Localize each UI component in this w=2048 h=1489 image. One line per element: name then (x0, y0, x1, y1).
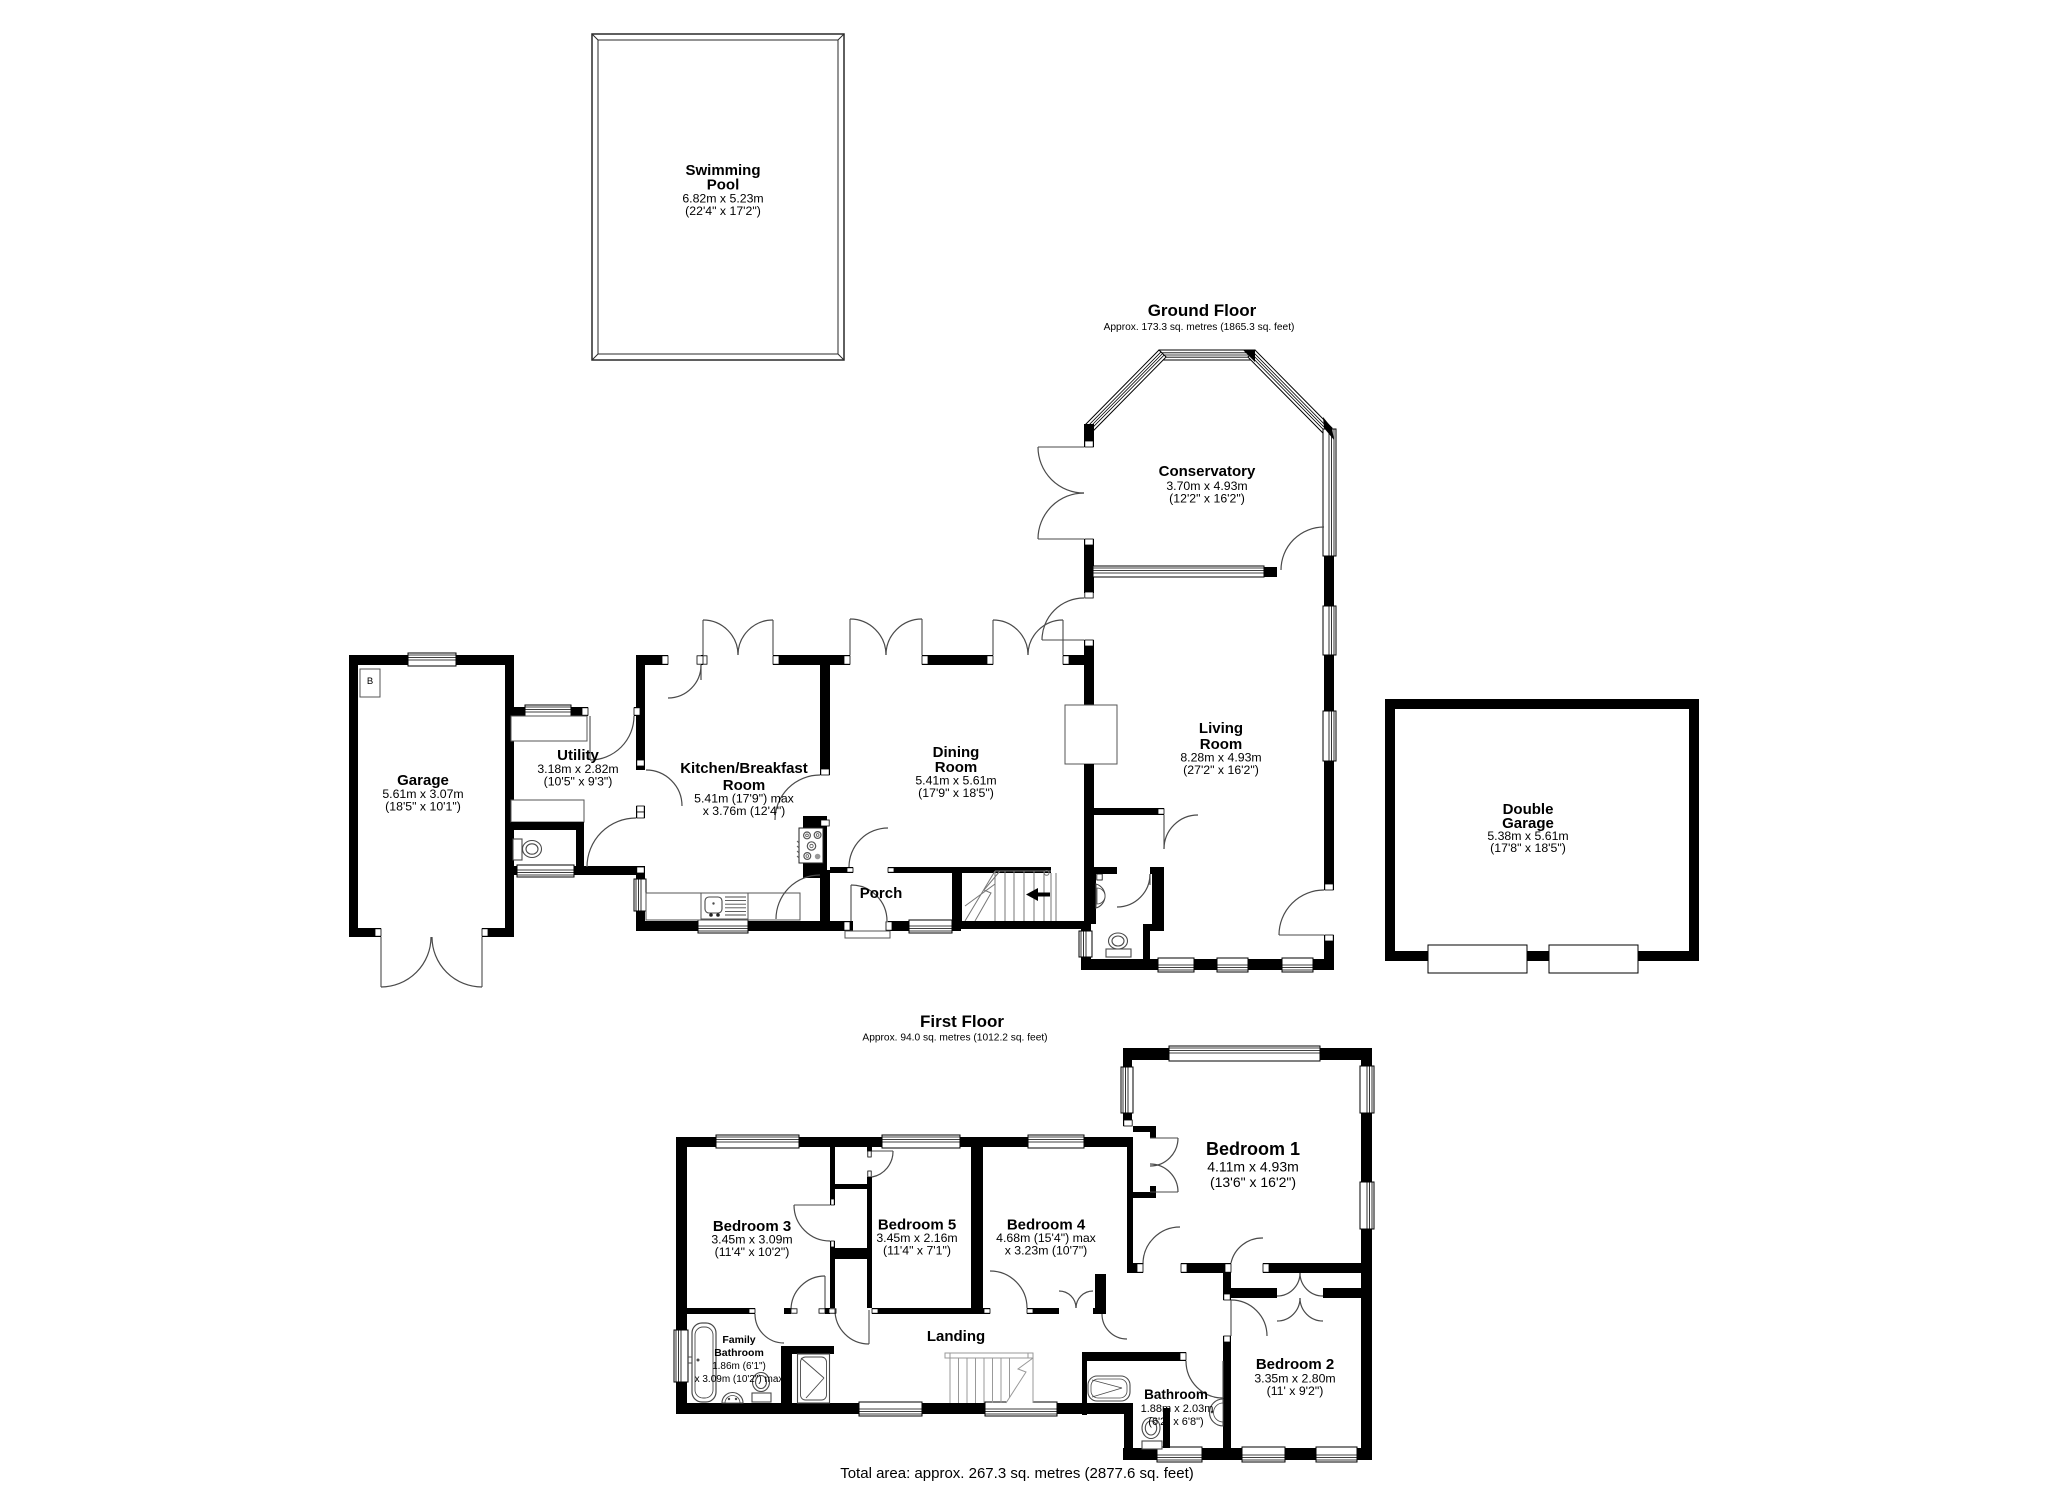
svg-text:(12'2" x 16'2"): (12'2" x 16'2") (1169, 492, 1245, 506)
svg-text:(27'2" x 16'2"): (27'2" x 16'2") (1183, 763, 1259, 777)
svg-text:(18'5" x 10'1"): (18'5" x 10'1") (385, 800, 461, 814)
svg-text:(11'4" x 10'2"): (11'4" x 10'2") (715, 1245, 790, 1259)
svg-text:Porch: Porch (860, 885, 903, 902)
svg-text:Bathroom: Bathroom (714, 1347, 764, 1359)
svg-text:4.11m x 4.93m: 4.11m x 4.93m (1207, 1159, 1299, 1175)
svg-text:Approx. 94.0 sq. metres (1012.: Approx. 94.0 sq. metres (1012.2 sq. feet… (862, 1033, 1047, 1044)
svg-text:1.88m x 2.03m: 1.88m x 2.03m (1141, 1403, 1214, 1415)
svg-text:Bathroom: Bathroom (1144, 1387, 1208, 1402)
svg-text:x 3.23m (10'7"): x 3.23m (10'7") (1005, 1244, 1088, 1258)
svg-text:Ground Floor: Ground Floor (1148, 301, 1257, 320)
svg-text:Conservatory: Conservatory (1159, 463, 1256, 480)
svg-text:Approx. 173.3 sq. metres (1865: Approx. 173.3 sq. metres (1865.3 sq. fee… (1104, 322, 1295, 333)
svg-text:x 3.76m (12'4"): x 3.76m (12'4") (703, 804, 786, 818)
svg-text:x 3.09m (10'2") max: x 3.09m (10'2") max (695, 1374, 784, 1385)
svg-text:Total area: approx. 267.3 sq.: Total area: approx. 267.3 sq. metres (28… (840, 1465, 1194, 1482)
svg-text:(6'2" x 6'8"): (6'2" x 6'8") (1148, 1416, 1203, 1428)
svg-text:Kitchen/Breakfast: Kitchen/Breakfast (680, 760, 808, 777)
svg-text:(10'5" x 9'3"): (10'5" x 9'3") (544, 775, 613, 789)
svg-text:(11'4" x 7'1"): (11'4" x 7'1") (883, 1244, 951, 1258)
svg-text:Bedroom 1: Bedroom 1 (1206, 1139, 1300, 1159)
svg-text:First Floor: First Floor (920, 1012, 1004, 1031)
svg-text:1.86m (6'1"): 1.86m (6'1") (712, 1361, 766, 1372)
svg-text:Family: Family (722, 1334, 755, 1346)
svg-text:Living: Living (1199, 720, 1243, 737)
svg-text:(11' x 9'2"): (11' x 9'2") (1267, 1384, 1324, 1398)
svg-text:(22'4" x 17'2"): (22'4" x 17'2") (685, 204, 761, 218)
svg-text:Bedroom 2: Bedroom 2 (1256, 1356, 1334, 1373)
svg-text:B: B (367, 676, 373, 687)
svg-text:(13'6" x 16'2"): (13'6" x 16'2") (1210, 1174, 1296, 1190)
svg-text:(17'9" x 18'5"): (17'9" x 18'5") (918, 786, 994, 800)
svg-text:Landing: Landing (927, 1328, 985, 1345)
svg-text:(17'8" x 18'5"): (17'8" x 18'5") (1490, 841, 1566, 855)
